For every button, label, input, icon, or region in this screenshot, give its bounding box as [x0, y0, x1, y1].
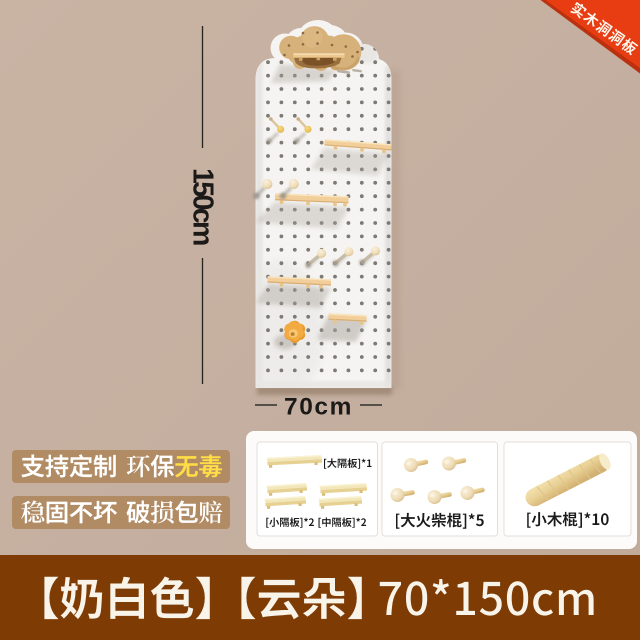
svg-text:70cm: 70cm [284, 394, 353, 421]
svg-text:150cm: 150cm [187, 168, 219, 245]
